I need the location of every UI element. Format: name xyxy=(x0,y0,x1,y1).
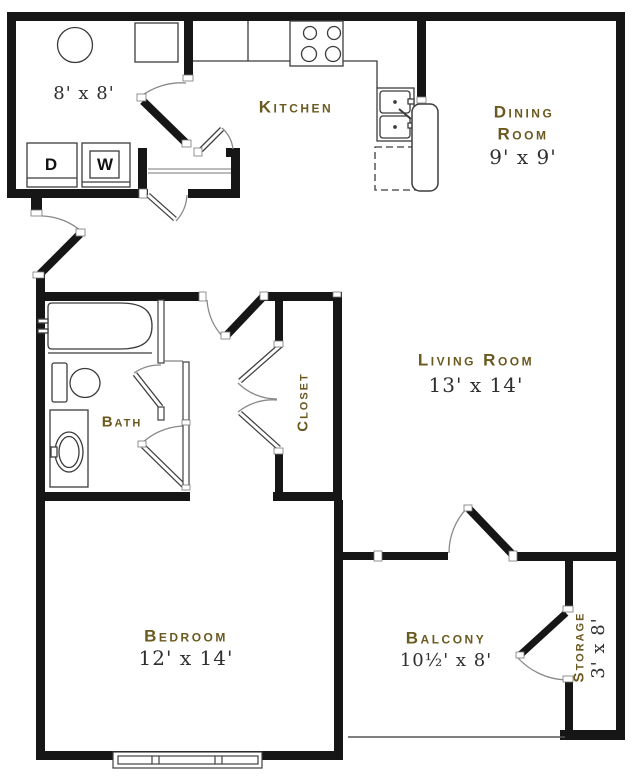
laundry-table xyxy=(58,28,93,63)
wall-bath-top xyxy=(36,292,205,301)
hall-door-leaf xyxy=(226,297,263,336)
vanity-sink-inner xyxy=(59,437,79,468)
stove-burner xyxy=(326,47,341,62)
bedroom-dimensions: 12' x 14' xyxy=(139,648,234,668)
bath-fixtures xyxy=(38,303,152,487)
storage-dimensions: 3' x 8' xyxy=(590,617,608,678)
bedroom-label: Bedroom xyxy=(144,628,228,645)
bedroom-window-glass xyxy=(118,756,258,764)
jamb xyxy=(139,189,147,198)
jamb xyxy=(417,97,426,103)
sink-drain xyxy=(394,101,396,103)
wall-bedroom-balcony xyxy=(334,500,343,760)
jamb xyxy=(138,441,146,447)
stove-burner xyxy=(302,47,317,62)
dining-dimensions: 9' x 9' xyxy=(489,147,556,167)
wall-left xyxy=(36,274,45,760)
jamb xyxy=(333,292,341,297)
storage-label: Storage xyxy=(572,612,587,683)
bath-partitions xyxy=(158,300,189,489)
toilet-door-arc xyxy=(134,365,161,373)
closet-lower-door-arc xyxy=(238,400,277,412)
stove-burner xyxy=(304,27,317,40)
counter-right-edge xyxy=(343,61,377,88)
floor-plan: 8' x 8' Kitchen Dining Room 9' x 9' Livi… xyxy=(0,0,635,780)
sink-knob xyxy=(408,99,414,104)
jamb xyxy=(182,420,190,425)
laundry-dimensions: 8' x 8' xyxy=(53,85,114,103)
jamb xyxy=(76,229,85,236)
windows xyxy=(113,752,262,768)
laundry-fixtures xyxy=(27,23,231,187)
wall-storage-top xyxy=(517,552,625,561)
wall-living-bottom-a xyxy=(343,552,375,560)
partition-bath-door-jamb xyxy=(183,423,189,489)
wall-kitchen-dining xyxy=(417,12,426,103)
wall-closet-top xyxy=(264,292,342,301)
balcony-door-arc xyxy=(449,508,467,553)
laundry-door-leaf xyxy=(143,101,186,143)
stove-burner xyxy=(328,27,341,40)
tub-faucet xyxy=(38,319,48,323)
wall-top xyxy=(7,12,625,21)
wall-right xyxy=(616,12,625,740)
jamb xyxy=(199,292,206,301)
jamb xyxy=(274,448,283,454)
wall-entry-closet-top xyxy=(226,148,240,157)
living-room-dimensions: 13' x 14' xyxy=(429,375,524,395)
bath-label: Bath xyxy=(102,415,143,430)
closet-upper-door-arc xyxy=(238,383,277,399)
storage-door-arc xyxy=(517,657,566,680)
partition-linen-left-lower xyxy=(158,407,164,420)
wall-storage-left-lower xyxy=(565,680,573,730)
jamb xyxy=(516,652,524,658)
jamb xyxy=(137,94,146,101)
dining-label-line2: Room xyxy=(498,126,549,143)
dryer-label: D xyxy=(45,155,57,175)
entry-closet-bottom-door-arc xyxy=(176,195,187,221)
vanity-faucet xyxy=(51,447,57,457)
partition-linen-right xyxy=(183,362,189,420)
toilet-tank xyxy=(52,363,67,402)
balcony-door-leaf xyxy=(469,509,512,554)
entry-door-leaf xyxy=(40,234,80,274)
jamb xyxy=(260,292,268,300)
jamb xyxy=(182,140,191,147)
jamb xyxy=(194,148,202,156)
wall-bath-bottom xyxy=(36,492,190,501)
jamb xyxy=(33,272,44,278)
kitchen-label: Kitchen xyxy=(259,99,333,116)
wall-living-left xyxy=(333,292,342,501)
laundry-cabinet xyxy=(135,23,178,62)
tub-faucet xyxy=(38,329,48,333)
jamb xyxy=(509,551,517,561)
wall-laundry-left xyxy=(7,12,16,198)
refrigerator xyxy=(412,104,438,191)
jamb xyxy=(182,485,190,490)
wall-closet-left-upper xyxy=(275,301,283,347)
jamb xyxy=(464,505,472,511)
wall-storage-bottom xyxy=(560,730,625,740)
wall-storage-left-upper xyxy=(565,561,573,612)
bathtub xyxy=(48,303,152,349)
laundry-door-arc xyxy=(140,83,186,97)
jamb xyxy=(374,551,382,561)
jamb xyxy=(221,332,230,339)
balcony-label: Balcony xyxy=(406,630,486,647)
jamb xyxy=(274,341,283,347)
wall-living-bottom-b xyxy=(382,552,448,560)
sink-drain xyxy=(394,126,396,128)
living-room-label: Living Room xyxy=(418,352,534,369)
wall-laundry-right xyxy=(184,12,193,80)
storage-door-leaf xyxy=(520,613,566,655)
washer-label: W xyxy=(97,155,113,175)
dishwasher xyxy=(375,147,415,190)
jamb xyxy=(183,75,193,81)
partition-linen-left-upper xyxy=(158,300,164,363)
wall-closet-bottom xyxy=(273,492,342,501)
closet-label: Closet xyxy=(296,372,311,432)
toilet-bowl xyxy=(70,369,100,398)
wall-laundry-bottom xyxy=(7,189,148,198)
bath-door-arc xyxy=(141,426,183,444)
jamb xyxy=(31,210,42,216)
dining-label-line1: Dining xyxy=(494,104,555,121)
balcony-dimensions: 10½' x 8' xyxy=(400,652,492,670)
